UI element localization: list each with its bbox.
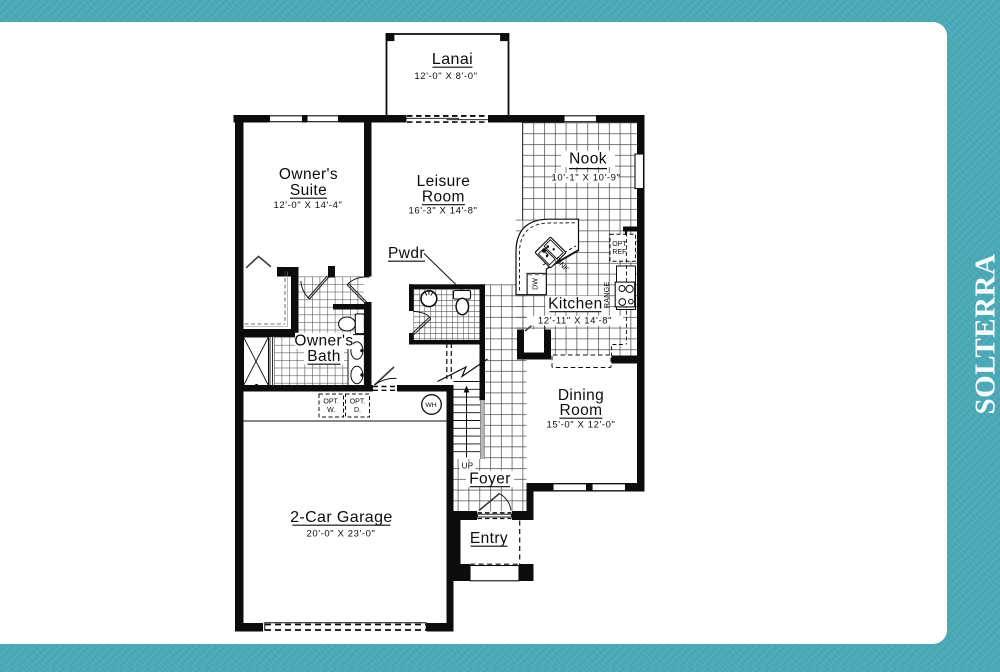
- svg-text:Pwdr: Pwdr: [388, 245, 425, 262]
- svg-text:Leisure: Leisure: [417, 173, 471, 190]
- svg-text:10'-1" X 10'-9": 10'-1" X 10'-9": [551, 173, 620, 184]
- svg-text:W.: W.: [327, 407, 335, 414]
- svg-text:Lanai: Lanai: [432, 51, 473, 68]
- svg-text:12'-11" X 14'-8": 12'-11" X 14'-8": [538, 316, 612, 327]
- svg-text:OPT.: OPT.: [612, 241, 628, 248]
- svg-text:2-Car Garage: 2-Car Garage: [290, 509, 393, 526]
- svg-text:Owner's: Owner's: [294, 333, 353, 350]
- svg-text:WH: WH: [425, 402, 436, 409]
- svg-text:Foyer: Foyer: [469, 471, 511, 488]
- svg-text:OPT.: OPT.: [323, 399, 339, 406]
- svg-text:12'-0" X 8'-0": 12'-0" X 8'-0": [414, 71, 477, 82]
- svg-text:UP: UP: [462, 462, 474, 471]
- svg-text:OPT.: OPT.: [350, 399, 366, 406]
- svg-text:DW: DW: [533, 278, 540, 290]
- svg-text:12'-0" X 14'-4": 12'-0" X 14'-4": [273, 200, 342, 211]
- svg-text:RANGE: RANGE: [602, 282, 611, 309]
- svg-text:Suite: Suite: [290, 182, 327, 199]
- svg-text:D.: D.: [354, 407, 361, 414]
- svg-text:Owner's: Owner's: [279, 166, 338, 183]
- svg-text:20'-0" X 23'-0": 20'-0" X 23'-0": [306, 529, 375, 540]
- svg-text:Entry: Entry: [470, 530, 508, 547]
- svg-text:Room: Room: [422, 189, 465, 206]
- svg-text:Nook: Nook: [569, 151, 607, 168]
- svg-text:Kitchen: Kitchen: [548, 296, 603, 313]
- svg-text:16'-3" X 14'-8": 16'-3" X 14'-8": [408, 206, 477, 217]
- svg-text:REF.: REF.: [612, 249, 627, 256]
- svg-text:Room: Room: [560, 402, 603, 419]
- svg-text:Bath: Bath: [307, 348, 341, 365]
- svg-text:15'-0" X 12'-0": 15'-0" X 12'-0": [546, 420, 615, 431]
